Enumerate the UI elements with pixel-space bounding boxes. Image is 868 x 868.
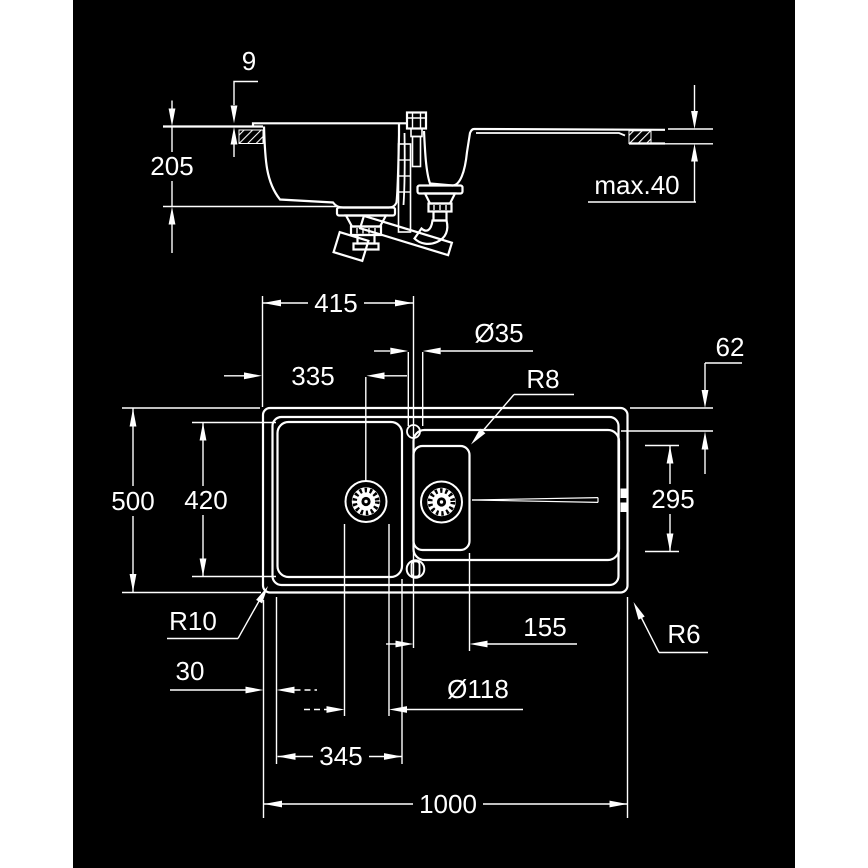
drain-clip-top [621, 489, 627, 499]
dim-label-board-width: 295 [651, 484, 694, 514]
dim-label-counter-max: max.40 [594, 170, 679, 200]
drain-clip-bottom [621, 503, 627, 513]
drainboard-surface [474, 129, 665, 130]
dim-label-bowl-depth-plan: 420 [184, 485, 227, 515]
dim-label-front-left-radius: R10 [169, 606, 217, 636]
dim-label-rim-width: 30 [176, 656, 205, 686]
counter-right-hatch [629, 131, 651, 144]
dim-label-board-corner-radius: R8 [526, 364, 559, 394]
dim-label-edge-to-board: 62 [716, 332, 745, 362]
dim-label-rim-height: 9 [242, 46, 256, 76]
canvas [73, 0, 795, 868]
dim-label-bowl-depth: 205 [150, 151, 193, 181]
dim-label-faucet-to-half-bowl: 155 [523, 612, 566, 642]
dim-label-faucet-from-left: 415 [314, 288, 357, 318]
counter-left-hatch [239, 130, 263, 144]
dim-label-overall-depth: 500 [111, 486, 154, 516]
sink-technical-drawing: 9 205 max.40 415 Ø35 62 335 R8 500 420 2… [0, 0, 868, 868]
drawing-sheet: 9 205 max.40 415 Ø35 62 335 R8 500 420 2… [0, 0, 868, 868]
dim-label-drain-from-left: 335 [291, 361, 334, 391]
dim-label-faucet-hole-dia: Ø35 [474, 318, 523, 348]
dim-label-front-right-radius: R6 [667, 619, 700, 649]
dim-label-drain-dia: Ø118 [447, 674, 509, 704]
dim-label-overall-width: 1000 [419, 789, 477, 819]
dim-label-bowl-width: 345 [319, 741, 362, 771]
